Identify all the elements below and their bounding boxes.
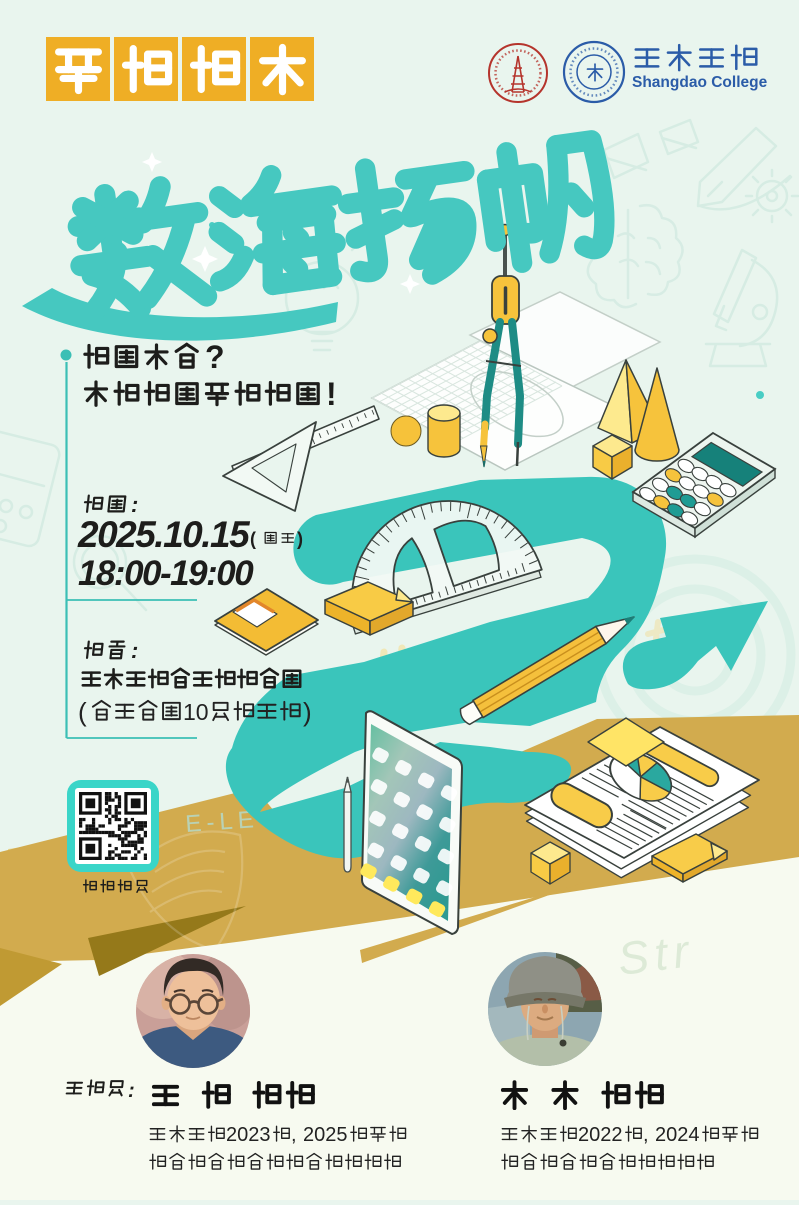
svg-text::: : [131, 638, 138, 663]
svg-text:2022: 2022 [578, 1124, 623, 1146]
svg-text:,: , [643, 1124, 649, 1146]
svg-text:(: ( [250, 529, 256, 549]
svg-text:): ) [303, 697, 312, 727]
svg-text:(: ( [78, 697, 87, 727]
svg-text::: : [128, 1080, 135, 1102]
svg-text:): ) [297, 529, 303, 549]
svg-text:2025: 2025 [303, 1124, 348, 1146]
svg-text:Shangdao College: Shangdao College [632, 74, 768, 91]
svg-text:2023: 2023 [226, 1124, 271, 1146]
svg-text:10: 10 [183, 699, 209, 725]
svg-text:Str: Str [615, 924, 698, 985]
svg-text:?: ? [205, 339, 225, 375]
svg-text:18:00-19:00: 18:00-19:00 [78, 554, 254, 593]
svg-text:,: , [291, 1124, 297, 1146]
svg-text:!: ! [326, 376, 337, 412]
svg-text:2025.10.15: 2025.10.15 [77, 514, 251, 555]
svg-text:2024: 2024 [655, 1124, 700, 1146]
